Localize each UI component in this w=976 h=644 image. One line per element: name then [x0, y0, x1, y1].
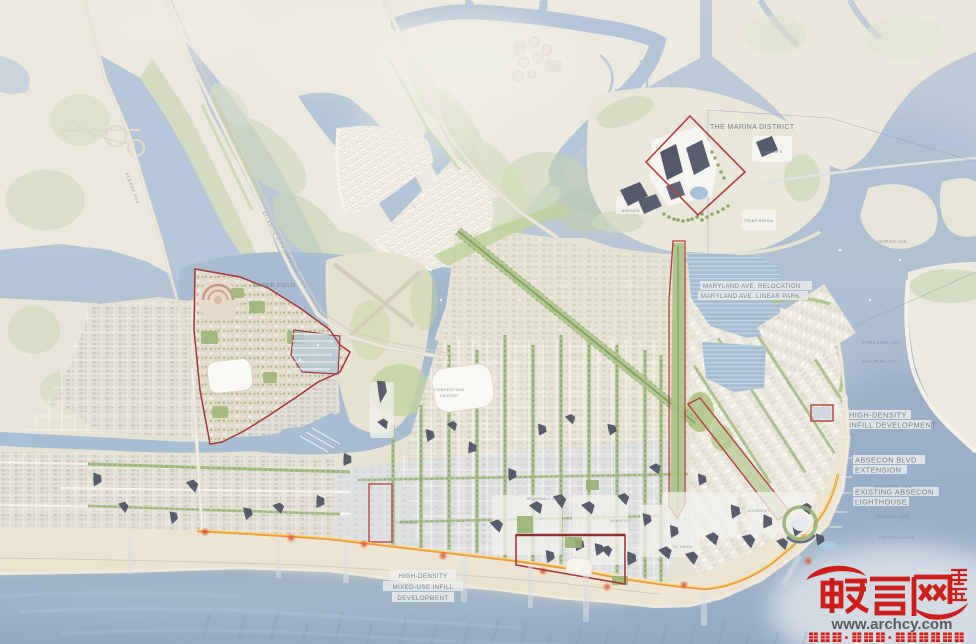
svg-text:www.archcy.com: www.archcy.com — [831, 616, 953, 633]
